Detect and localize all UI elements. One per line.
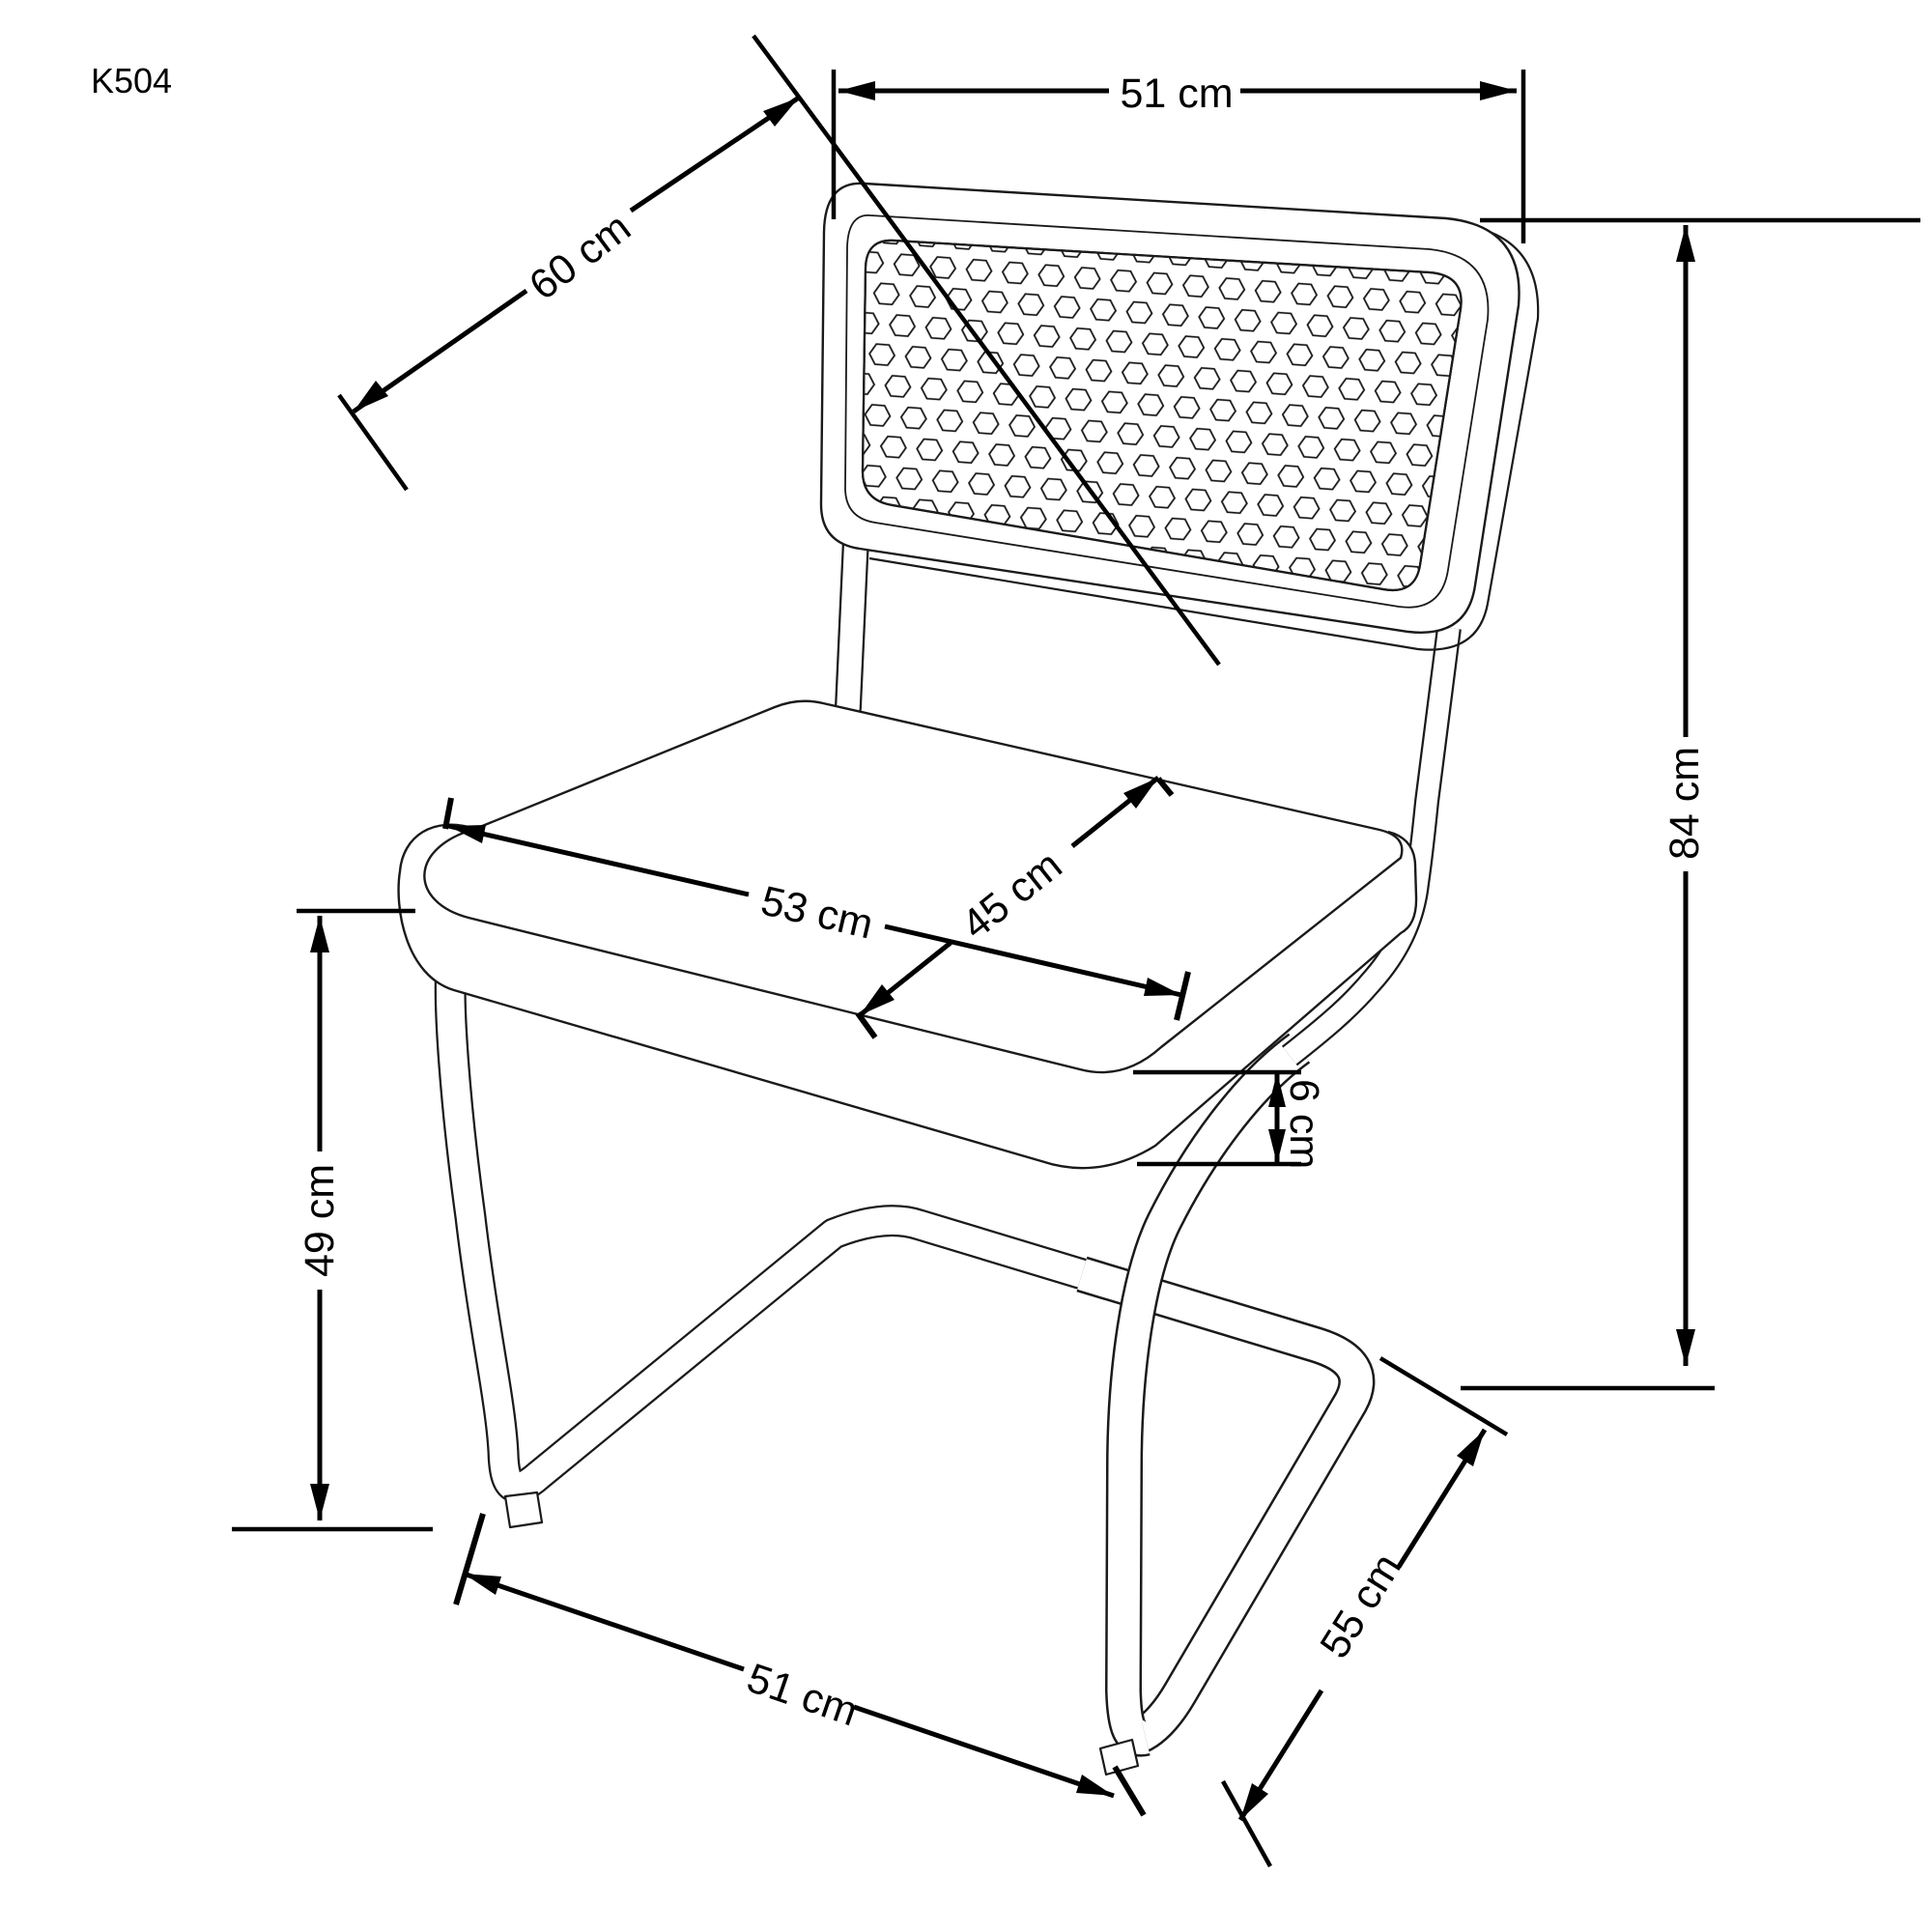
svg-text:51 cm: 51 cm bbox=[1120, 71, 1233, 117]
svg-text:6 cm: 6 cm bbox=[1281, 1079, 1327, 1169]
svg-text:K504: K504 bbox=[91, 61, 172, 100]
svg-text:49 cm: 49 cm bbox=[297, 1164, 343, 1277]
svg-text:84 cm: 84 cm bbox=[1662, 747, 1708, 860]
